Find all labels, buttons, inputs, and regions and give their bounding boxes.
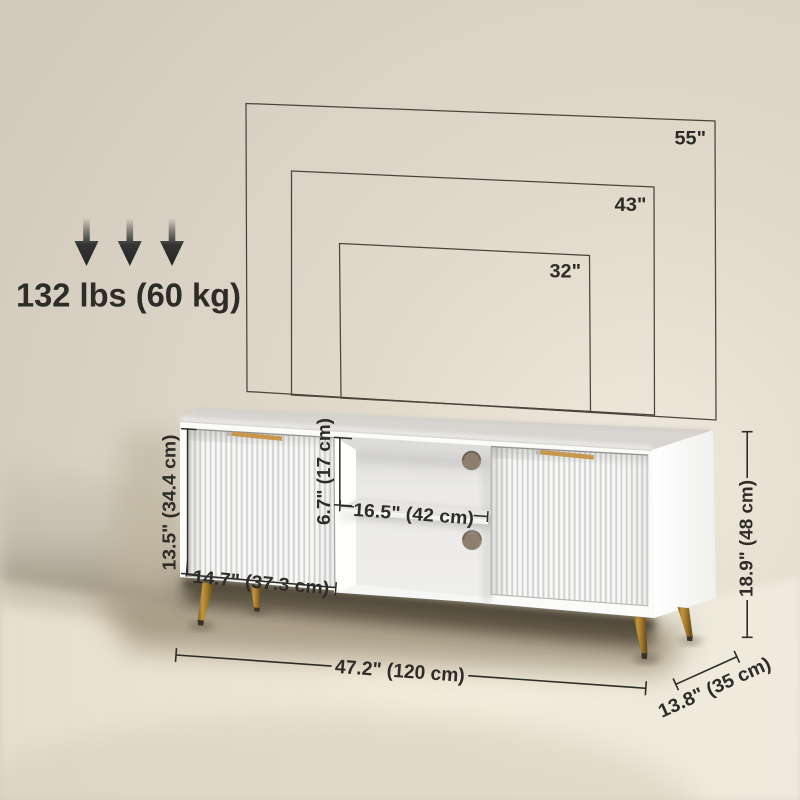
svg-text:6.7" (17 cm): 6.7" (17 cm) (313, 418, 334, 525)
svg-text:13.5" (34.4 cm): 13.5" (34.4 cm) (159, 435, 180, 571)
svg-text:43": 43" (615, 194, 647, 216)
svg-text:132 lbs (60 kg): 132 lbs (60 kg) (16, 277, 241, 314)
svg-text:32": 32" (550, 261, 582, 283)
svg-text:18.9" (48 cm): 18.9" (48 cm) (736, 480, 757, 597)
svg-text:55": 55" (675, 129, 707, 150)
